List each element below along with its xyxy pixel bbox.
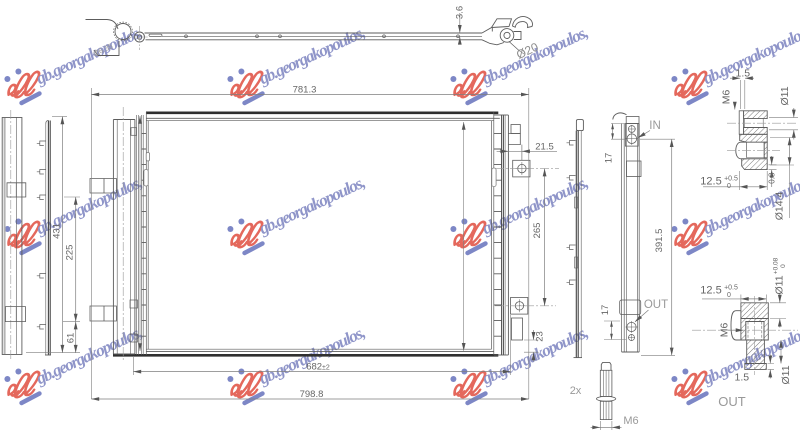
svg-text:391.5: 391.5 (654, 229, 665, 253)
svg-text:798.8: 798.8 (300, 389, 324, 400)
svg-text:Ø11: Ø11 (779, 86, 791, 105)
svg-text:IN: IN (649, 120, 661, 132)
svg-text:M6: M6 (721, 90, 733, 105)
svg-text:21.5: 21.5 (535, 142, 554, 153)
svg-text:265: 265 (532, 223, 543, 239)
svg-text:0: 0 (727, 183, 731, 190)
svg-text:12.5: 12.5 (700, 285, 721, 297)
svg-text:17: 17 (600, 305, 611, 316)
svg-text:431: 431 (52, 223, 63, 239)
svg-text:Ø11: Ø11 (780, 365, 792, 384)
svg-text:0: 0 (780, 264, 787, 268)
svg-text:0.8: 0.8 (768, 172, 777, 184)
svg-text:M6: M6 (719, 323, 731, 338)
svg-text:1.5: 1.5 (735, 68, 750, 80)
svg-text:+0.5: +0.5 (724, 285, 738, 292)
svg-text:225: 225 (65, 245, 76, 261)
svg-text:61: 61 (66, 333, 77, 344)
svg-text:+0.5: +0.5 (724, 176, 738, 183)
svg-text:Ø11: Ø11 (774, 275, 786, 294)
svg-text:17: 17 (604, 153, 615, 164)
svg-text:23: 23 (535, 331, 546, 342)
svg-text:Ø14.4: Ø14.4 (774, 192, 786, 221)
svg-text:+0.08: +0.08 (773, 257, 780, 274)
svg-text:1.5: 1.5 (734, 372, 749, 384)
svg-text:2x: 2x (570, 385, 582, 397)
svg-text:OUT: OUT (718, 394, 746, 409)
svg-text:0: 0 (727, 292, 731, 299)
svg-text:3.6: 3.6 (455, 6, 466, 19)
svg-text:OUT: OUT (644, 299, 668, 311)
svg-text:781.3: 781.3 (293, 85, 317, 96)
svg-text:12.5: 12.5 (700, 176, 721, 188)
svg-text:M6: M6 (623, 415, 638, 427)
